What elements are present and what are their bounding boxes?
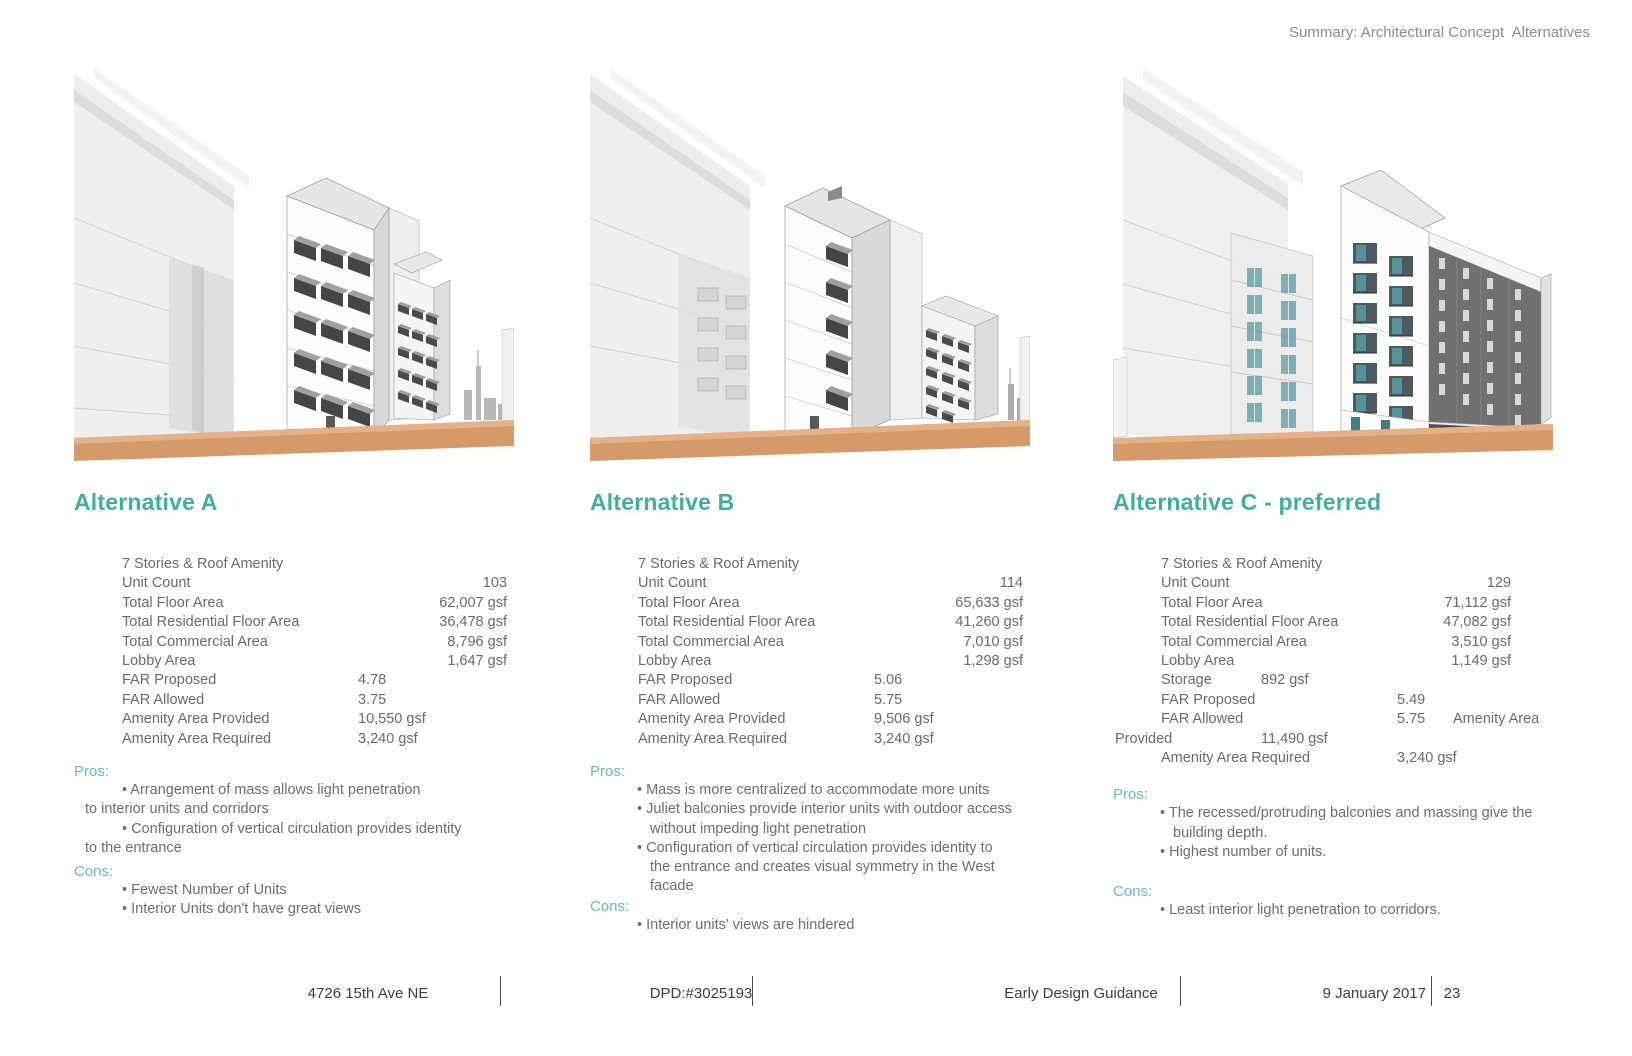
cons-label: Cons: xyxy=(1113,882,1613,901)
bullet-item: • Interior units' views are hindered xyxy=(590,916,1090,935)
stat-label: Storage xyxy=(1161,672,1212,688)
stat-row: Total Floor Area65,633 gsf xyxy=(638,594,1023,613)
stat-label: Amenity Area Required xyxy=(638,731,787,747)
footer-date: 9 January 2017 xyxy=(1230,985,1426,1002)
cons-label: Cons: xyxy=(590,897,1090,916)
footer-permit-number: DPD:#3025193 xyxy=(601,985,801,1002)
stat-row: Unit Count129 xyxy=(1161,574,1511,593)
footer-divider xyxy=(752,976,753,1006)
stat-label: Lobby Area xyxy=(122,653,195,669)
city-skyline xyxy=(464,350,504,420)
stat-value: 129 xyxy=(1487,574,1511,593)
stat-label: Total Floor Area xyxy=(122,595,224,611)
stat-label: Lobby Area xyxy=(638,653,711,669)
stat-label: FAR Allowed xyxy=(122,692,204,708)
stat-label: Total Residential Floor Area xyxy=(638,614,815,630)
stat-label: Lobby Area xyxy=(1161,653,1234,669)
ghost-building xyxy=(590,68,765,453)
bullet-item: • Fewest Number of Units xyxy=(74,881,574,900)
bullet-item: • Mass is more centralized to accommodat… xyxy=(590,781,1090,800)
alternative-c-title: Alternative C - preferred xyxy=(1113,488,1613,516)
stat-label: 7 Stories & Roof Amenity xyxy=(638,556,799,572)
stat-row: Lobby Area1,298 gsf xyxy=(638,652,1023,671)
stat-row: Total Floor Area71,112 gsf xyxy=(1161,594,1511,613)
white-wall-strip xyxy=(1113,357,1127,438)
stat-value: 9,506 gsf xyxy=(874,710,934,729)
stat-value: 10,550 gsf xyxy=(358,710,426,729)
stat-value: 1,149 gsf xyxy=(1451,652,1511,671)
stat-row: FAR Allowed3.75 xyxy=(122,691,507,710)
stat-row: Total Commercial Area7,010 gsf xyxy=(638,633,1023,652)
cons-list: • Fewest Number of Units• Interior Units… xyxy=(74,881,574,920)
stat-value: 47,082 gsf xyxy=(1443,613,1511,632)
pros-list: • The recessed/protruding balconies and … xyxy=(1113,804,1613,862)
stat-row: Storage892 gsf xyxy=(1161,671,1511,690)
stat-row: Amenity Area Required3,240 gsf xyxy=(122,730,507,749)
main-building xyxy=(785,186,922,436)
stat-value: 11,490 gsf xyxy=(1261,730,1328,749)
footer-divider xyxy=(500,976,501,1006)
stat-value: 3,240 gsf xyxy=(358,730,418,749)
alternative-c-rendering xyxy=(1113,68,1553,463)
stat-label: Total Residential Floor Area xyxy=(122,614,299,630)
stat-row: Lobby Area1,149 gsf xyxy=(1161,652,1511,671)
stat-label: 7 Stories & Roof Amenity xyxy=(1161,556,1322,572)
bullet-item: • Configuration of vertical circulation … xyxy=(590,839,1090,897)
secondary-building xyxy=(922,296,998,423)
stat-row: Amenity Area Required3,240 gsf xyxy=(1161,749,1511,768)
stat-label: Unit Count xyxy=(638,575,707,591)
alternative-a-title: Alternative A xyxy=(74,488,574,516)
stat-label: Provided xyxy=(1115,731,1172,747)
stat-row: Total Residential Floor Area36,478 gsf xyxy=(122,613,507,632)
stat-row: 7 Stories & Roof Amenity xyxy=(638,555,1023,574)
stat-value: 8,796 gsf xyxy=(447,633,507,652)
stat-row: Unit Count114 xyxy=(638,574,1023,593)
alternative-b-rendering xyxy=(590,68,1030,463)
stat-label: Total Commercial Area xyxy=(122,634,268,650)
footer-page-number: 23 xyxy=(1437,985,1467,1002)
bullet-item: • Juliet balconies provide interior unit… xyxy=(590,800,1090,839)
pros-list: • Mass is more centralized to accommodat… xyxy=(590,781,1090,897)
stat-label: Total Floor Area xyxy=(638,595,740,611)
stat-label: Total Commercial Area xyxy=(1161,634,1307,650)
bullet-item: • Configuration of vertical circulation … xyxy=(74,820,574,859)
footer-divider xyxy=(1180,976,1181,1006)
alternative-b-title: Alternative B xyxy=(590,488,1090,516)
stat-label: Amenity Area Required xyxy=(1161,750,1310,766)
stat-value: 5.49 xyxy=(1397,691,1425,710)
stat-value: 7,010 gsf xyxy=(963,633,1023,652)
stat-row: 7 Stories & Roof Amenity xyxy=(1161,555,1511,574)
alternative-a-rendering xyxy=(74,68,514,463)
dark-facade-wing xyxy=(1429,232,1551,432)
stat-value: 1,298 gsf xyxy=(963,652,1023,671)
stat-label: Unit Count xyxy=(122,575,191,591)
pros-label: Pros: xyxy=(74,762,574,781)
stat-value: 3,510 gsf xyxy=(1451,633,1511,652)
stat-value: 3,240 gsf xyxy=(874,730,934,749)
page-header-summary: Summary: Architectural Concept Alternati… xyxy=(1100,24,1590,41)
stat-row: Total Residential Floor Area41,260 gsf xyxy=(638,613,1023,632)
stat-value: 36,478 gsf xyxy=(439,613,507,632)
stat-value: 5.75 xyxy=(874,691,902,710)
cons-list: • Least interior light penetration to co… xyxy=(1113,901,1613,920)
stat-value: 103 xyxy=(483,574,507,593)
stat-value: 4.78 xyxy=(358,671,386,690)
stat-row: Amenity Area Required3,240 gsf xyxy=(638,730,1023,749)
bullet-item: • Least interior light penetration to co… xyxy=(1113,901,1613,920)
stat-row: Total Commercial Area3,510 gsf xyxy=(1161,633,1511,652)
stat-value: 41,260 gsf xyxy=(955,613,1023,632)
bullet-item: • The recessed/protruding balconies and … xyxy=(1113,804,1613,843)
stat-value: 892 gsf xyxy=(1261,671,1309,690)
stat-row: FAR Allowed5.75 xyxy=(638,691,1023,710)
pros-list: • Arrangement of mass allows light penet… xyxy=(74,781,574,858)
stat-label: Total Residential Floor Area xyxy=(1161,614,1338,630)
stat-label: FAR Allowed xyxy=(1161,711,1243,727)
alternative-a-column: Alternative A 7 Stories & Roof AmenityUn… xyxy=(74,68,574,920)
footer-divider xyxy=(1431,976,1432,1006)
stat-label: Amenity Area Provided xyxy=(638,711,786,727)
stat-row: FAR Allowed5.75Amenity Area xyxy=(1161,710,1511,729)
alternative-a-stats: 7 Stories & Roof AmenityUnit Count103Tot… xyxy=(122,555,507,749)
stat-label: Total Floor Area xyxy=(1161,595,1263,611)
stat-label: 7 Stories & Roof Amenity xyxy=(122,556,283,572)
stat-row: Total Residential Floor Area47,082 gsf xyxy=(1161,613,1511,632)
stat-value: 3.75 xyxy=(358,691,386,710)
stat-label: FAR Proposed xyxy=(638,672,732,688)
cons-list: • Interior units' views are hindered xyxy=(590,916,1090,935)
stat-row: Amenity Area Provided9,506 gsf xyxy=(638,710,1023,729)
stat-label: Unit Count xyxy=(1161,575,1230,591)
stat-row: FAR Proposed5.06 xyxy=(638,671,1023,690)
secondary-building xyxy=(394,252,450,420)
stat-row: Provided11,490 gsf xyxy=(1161,730,1511,749)
footer-address: 4726 15th Ave NE xyxy=(268,985,468,1002)
bullet-item: • Interior Units don't have great views xyxy=(74,900,574,919)
stat-label: Amenity Area Required xyxy=(122,731,271,747)
ghost-building xyxy=(74,68,249,453)
stat-value: 3,240 gsf xyxy=(1397,749,1457,768)
bullet-item: • Highest number of units. xyxy=(1113,843,1613,862)
pros-label: Pros: xyxy=(590,762,1090,781)
stat-label: FAR Proposed xyxy=(1161,692,1255,708)
stat-row: Amenity Area Provided10,550 gsf xyxy=(122,710,507,729)
stat-row: Total Commercial Area8,796 gsf xyxy=(122,633,507,652)
stat-row: 7 Stories & Roof Amenity xyxy=(122,555,507,574)
alternative-b-stats: 7 Stories & Roof AmenityUnit Count114Tot… xyxy=(638,555,1023,749)
stat-row: Unit Count103 xyxy=(122,574,507,593)
stat-row: FAR Proposed4.78 xyxy=(122,671,507,690)
stat-value: 1,647 gsf xyxy=(447,652,507,671)
stat-row: FAR Proposed5.49 xyxy=(1161,691,1511,710)
stat-value: 114 xyxy=(1000,574,1023,593)
alternative-c-stats: 7 Stories & Roof AmenityUnit Count129Tot… xyxy=(1161,555,1511,768)
alternative-b-column: Alternative B 7 Stories & Roof AmenityUn… xyxy=(590,68,1090,935)
pros-label: Pros: xyxy=(1113,785,1613,804)
stat-label: FAR Proposed xyxy=(122,672,216,688)
stat-value: Amenity Area xyxy=(1453,710,1539,729)
stat-row: Total Floor Area62,007 gsf xyxy=(122,594,507,613)
stat-value: 5.06 xyxy=(874,671,902,690)
stat-label: FAR Allowed xyxy=(638,692,720,708)
cons-label: Cons: xyxy=(74,862,574,881)
stat-label: Amenity Area Provided xyxy=(122,711,270,727)
stat-value: 62,007 gsf xyxy=(439,594,507,613)
bullet-item: • Arrangement of mass allows light penet… xyxy=(74,781,574,820)
ghost-tower-teal-windows xyxy=(1231,233,1313,440)
stat-label: Total Commercial Area xyxy=(638,634,784,650)
alternative-c-column: Alternative C - preferred 7 Stories & Ro… xyxy=(1113,68,1613,920)
stat-value: 5.75 xyxy=(1397,710,1425,729)
stat-row: Lobby Area1,647 gsf xyxy=(122,652,507,671)
footer-doc-title: Early Design Guidance xyxy=(981,985,1181,1002)
stat-value: 71,112 gsf xyxy=(1444,594,1511,613)
stat-value: 65,633 gsf xyxy=(955,594,1023,613)
